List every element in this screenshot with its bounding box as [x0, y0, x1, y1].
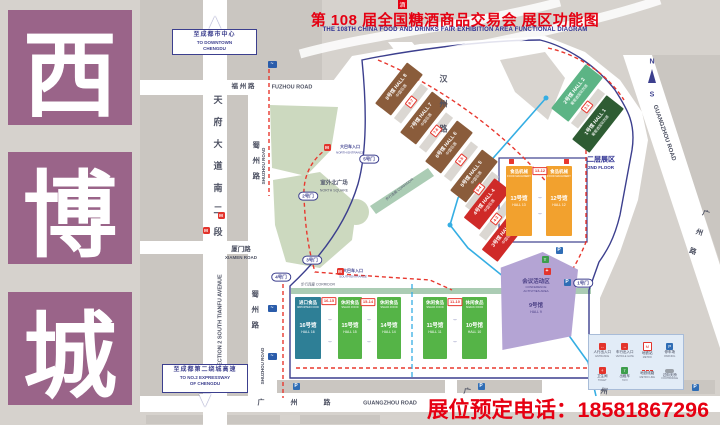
hall-13: 食品机械FOOD MACHINERY13号馆HALL 13	[506, 166, 532, 236]
hall-16-label: IMPORTED FOOD	[295, 306, 321, 309]
road-label-xiamen-en: XIAMEN ROAD	[225, 256, 257, 261]
hall-13-label: FOOD MACHINERY	[506, 175, 532, 178]
north-entrance-label-en: NORTH ENTRANCE	[336, 152, 364, 155]
hall-14-label: 休闲食品	[377, 300, 401, 306]
legend-item: T出租车TAXI	[614, 363, 637, 386]
hall-11-label: 11号馆	[423, 323, 447, 330]
corridor-arrow: ↔	[328, 340, 333, 345]
corridor-arrow: ↔	[453, 340, 458, 345]
sidebar-char-cheng-text: 城	[23, 281, 117, 417]
hall-10-label: 10号馆	[462, 323, 487, 330]
legend-bluep-icon: P	[666, 343, 673, 350]
hall-15-label: 15号馆	[338, 323, 362, 330]
road-char-zhou: 州	[600, 388, 608, 396]
legend-red-icon: ↔	[621, 343, 628, 350]
gate-pill: 5号门	[359, 155, 379, 164]
hall-9: 会议活动区CONFERENCEACTIVITIES AREA9号馆HALL 9	[494, 252, 578, 350]
hall-11: 休闲食品SNACK FOOD11号馆HALL 11	[423, 297, 447, 359]
legend-item: M地铁站METRO	[636, 338, 659, 363]
legend-label-cn: 停车场	[665, 351, 676, 355]
road-label-fuzhou-cn: 福 州 路	[231, 84, 254, 91]
sidebar-char-xi: 西	[8, 10, 132, 125]
hall-11-label: SNACK FOOD	[423, 306, 447, 309]
legend-label-en: ENTRANCE	[595, 356, 609, 359]
sidebar-char-bo: 博	[8, 152, 132, 264]
compass-n: N	[649, 59, 654, 66]
legend-red2-icon: +	[599, 367, 606, 374]
exit-marker-icon	[564, 159, 569, 164]
sign-line: CHENGDU	[174, 46, 255, 52]
metro-entrance-icon: ~	[268, 61, 277, 68]
parking-icon: P	[556, 247, 563, 254]
corridor-arrow: ↔	[538, 212, 543, 217]
road-label-guangzhou-s-en: GUANGZHOU ROAD	[363, 401, 417, 407]
page-subtitle: THE 108TH CHINA FOOD AND DRINKS FAIR EXH…	[323, 27, 588, 33]
legend-item: 地铁线路METRO LINE	[636, 363, 659, 386]
south-entrance-label-cn: 大巴车入口	[343, 269, 363, 273]
corridor-label-south: 步行连廊 CORRIDOR	[301, 283, 335, 287]
expo-map-poster: 西 博 城 酒 第 108 届全国糖酒商品交易会 展区功能图 THE 108TH…	[0, 0, 720, 425]
metro-station-icon: M	[203, 227, 210, 234]
exit-marker-icon	[509, 159, 514, 164]
hall-11-label: HALL 11	[423, 330, 447, 334]
hall-14-label: SNACK FOOD	[377, 306, 401, 309]
legend-label-en: METRO LINE	[640, 377, 655, 380]
road-char-guang: 广	[463, 388, 471, 396]
south-entrance-label-en: SOUTH ENTRANCE	[339, 276, 367, 279]
legend-label-cn: 地铁站	[642, 352, 653, 356]
fair-logo-icon: 酒	[398, 0, 407, 9]
north-square-label-cn: 室外北广场	[320, 181, 348, 187]
hall-9-label: HALL 9	[494, 310, 578, 314]
hall-12-label: 12号馆	[546, 196, 572, 203]
sidebar-char-bo-text: 博	[23, 140, 117, 276]
parking-icon: P	[478, 383, 485, 390]
legend-label-en: PARKING	[664, 356, 675, 359]
service-icon: +	[544, 268, 551, 275]
hall-12-label: HALL 12	[546, 203, 572, 207]
legend-label-cn: 地铁线路	[640, 372, 654, 376]
legend-item: 过街天桥FOOTBRIDGE	[659, 363, 682, 386]
road-label-guangzhou-s-cn: 广 州 路	[258, 400, 343, 407]
road-label-tianfu-cn: 天府大道南二段	[213, 95, 222, 249]
hall-16-label: 16号馆	[295, 323, 321, 330]
legend-label-en: VEHICLE GATE	[616, 356, 634, 359]
parking-icon: P	[293, 383, 300, 390]
sign-to-downtown: 至成都市中心TO DOWNTOWNCHENGDU	[172, 29, 257, 55]
north-square-label-en: NORTH SQUARE	[320, 189, 348, 193]
parking-icon: P	[564, 279, 571, 286]
arrow-down-icon	[199, 394, 211, 407]
hall-10-label: HALL 10	[462, 330, 487, 334]
hall-12-label: FOOD MACHINERY	[546, 175, 572, 178]
map-legend: ↔人行出入口ENTRANCE↔车行出入口VEHICLE GATEM地铁站METR…	[588, 334, 684, 390]
metro-entrance-icon: ~	[268, 353, 277, 360]
second-floor-label-cn: 二层展区	[587, 157, 615, 164]
metro-station-icon: M	[218, 212, 225, 219]
legend-label-cn: 卫生间	[597, 375, 608, 379]
hall-10-label: SNACK FOOD	[462, 306, 487, 309]
legend-label-en: TOILET	[598, 380, 607, 383]
hall-15-label: 休闲食品	[338, 300, 362, 306]
gate-pill: 3号门	[302, 256, 322, 265]
booking-phone: 展位预定电话：18581867296	[427, 393, 709, 424]
hall-14-label: HALL 14	[377, 330, 401, 334]
legend-label-cn: 人行出入口	[594, 351, 612, 355]
legend-label-en: METRO	[643, 357, 652, 360]
arrow-up-icon	[209, 16, 221, 29]
hall-11-label: 休闲食品	[423, 300, 447, 306]
metro-station-icon: M	[337, 268, 344, 275]
hall-9-label: ACTIVITIES AREA	[494, 290, 578, 294]
hall-10-label: 休闲食品	[462, 300, 487, 306]
legend-label-en: TAXI	[622, 380, 627, 383]
hall-connector-15-14: 15-14	[360, 298, 375, 306]
sign-line: OF CHENGDU	[164, 381, 246, 387]
hall-15: 休闲食品SNACK FOOD15号馆HALL 15	[338, 297, 362, 359]
hall-14-label: 14号馆	[377, 323, 401, 330]
corridor-arrow: ↔	[538, 196, 543, 201]
legend-item: P停车场PARKING	[659, 338, 682, 363]
legend-item: +卫生间TOILET	[591, 363, 614, 386]
hall-12: 食品机械FOOD MACHINERY12号馆HALL 12	[546, 166, 572, 236]
hall-connector-11-10: 11-10	[447, 298, 462, 306]
sidebar-char-cheng: 城	[8, 292, 132, 405]
gate-pill: 1号门	[573, 279, 593, 288]
corridor-arrow: ↔	[367, 318, 372, 323]
hall-10: 休闲食品SNACK FOOD10号馆HALL 10	[462, 297, 487, 359]
metro-entrance-icon: ~	[268, 305, 277, 312]
road-label-tianfu-en: SECTION 2 SOUTH TIANFU AVENUE	[218, 274, 224, 369]
sign-line: 至成都市中心	[174, 32, 255, 40]
legend-gray-icon	[665, 369, 674, 373]
taxi-icon: T	[542, 256, 549, 263]
road-label-shuzhou-lower-en: SHUZHOU ROAD	[261, 348, 266, 385]
gate-pill: 2号门	[298, 192, 318, 201]
hall-connector-16-15: 16-15	[321, 297, 336, 305]
legend-redo-icon: M	[643, 342, 652, 351]
hall-15-label: HALL 15	[338, 330, 362, 334]
road-label-hanzhou-cn: 汉州路	[439, 75, 447, 150]
hall-14: 休闲食品SNACK FOOD14号馆HALL 14	[377, 297, 401, 359]
legend-green-icon: T	[621, 367, 628, 374]
road-label-xiamen-cn: 厦门路	[231, 247, 251, 254]
corridor-arrow: ↔	[367, 340, 372, 345]
hall-15-label: SNACK FOOD	[338, 306, 362, 309]
legend-item: ↔车行出入口VEHICLE GATE	[614, 338, 637, 363]
corridor-arrow: ↔	[453, 318, 458, 323]
hall-13-label: HALL 13	[506, 203, 532, 207]
road-label-fuzhou-en: FUZHOU ROAD	[272, 85, 313, 91]
legend-item: ↔人行出入口ENTRANCE	[591, 338, 614, 363]
sign-to-expressway: 至成都第二绕城高速TO NO.2 EXPRESSWAYOF CHENGDU	[162, 364, 248, 393]
hall-16: 进口食品IMPORTED FOOD16号馆HALL 16	[295, 297, 321, 359]
road-label-shuzhou-lower-cn: 蜀州路	[251, 290, 259, 337]
legend-red-icon: ↔	[599, 343, 606, 350]
hall-13-label: 13号馆	[506, 196, 532, 203]
legend-label-en: FOOTBRIDGE	[661, 378, 678, 381]
hall-16-label: HALL 16	[295, 330, 321, 334]
compass-arrow-icon	[648, 69, 656, 83]
parking-icon: P	[692, 384, 699, 391]
second-floor-label-en: 2ND FLOOR	[588, 166, 614, 171]
hall-connector-13-12: 13-12	[532, 167, 547, 175]
hall-9-label: 9号馆	[494, 303, 578, 310]
sign-line: 至成都第二绕城高速	[164, 367, 246, 375]
corridor-arrow: ↔	[328, 318, 333, 323]
sidebar-char-xi-text: 西	[23, 0, 117, 136]
north-entrance-label-cn: 大巴车入口	[340, 145, 360, 149]
road-label-shuzhou-upper-cn: 蜀州路	[252, 141, 260, 188]
legend-label-cn: 车行出入口	[616, 351, 634, 355]
road-label-shuzhou-upper-en: SHUZHOU ROAD	[262, 148, 267, 185]
compass-s: S	[650, 92, 655, 99]
legend-label-cn: 出租车	[620, 375, 631, 379]
metro-station-icon: M	[324, 144, 331, 151]
gate-pill: 4号门	[271, 273, 291, 282]
